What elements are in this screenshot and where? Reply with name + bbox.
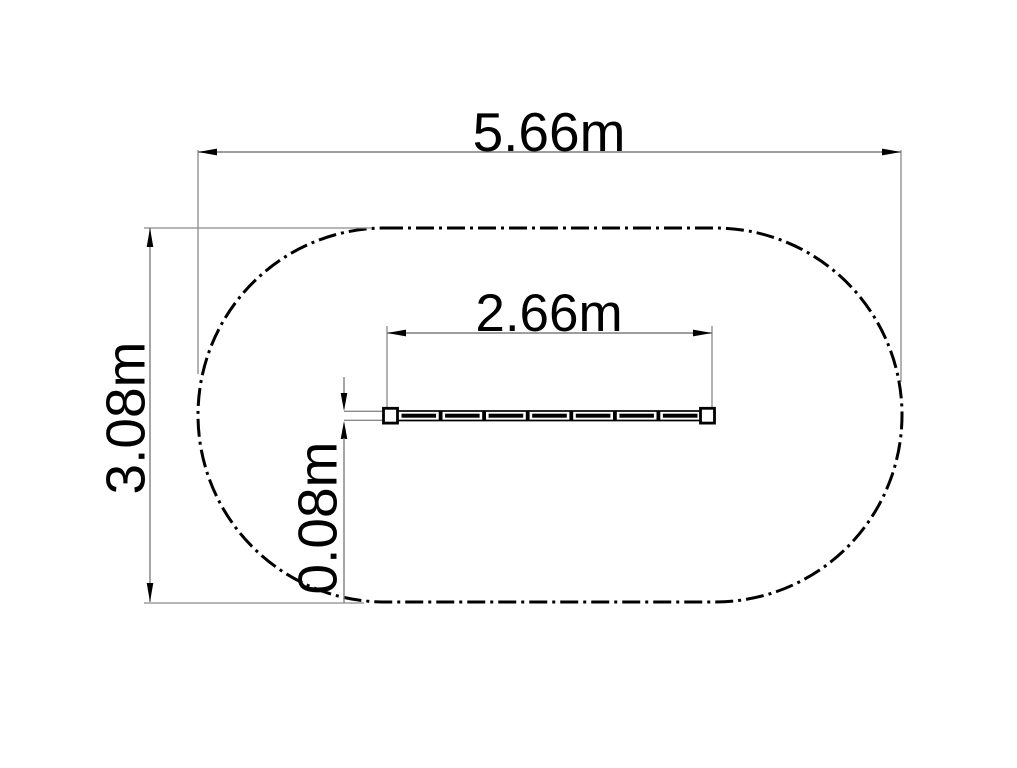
arrowhead-up [147,228,154,247]
arrowhead-down [341,393,348,411]
bar-endcap-right [701,408,715,423]
bar-slat [663,414,698,418]
technical-drawing-canvas: 5.66m 2.66m 3.08m 0.08m [0,0,1017,768]
bar-tick [439,411,443,420]
bar-slat [619,414,654,418]
dim-height-label: 3.08m [99,342,154,495]
arrowhead-right [882,149,901,156]
bar-tick [657,411,661,420]
bar-tick [526,411,530,420]
bar-tick [613,411,617,420]
arrowhead-down [147,583,154,602]
bar-endcap-left [384,408,398,423]
dim-overall-width [198,149,901,382]
bar-slat [402,414,437,418]
arrowhead-left [198,149,217,156]
bar-tick [482,411,486,420]
arrowhead-up [341,421,348,439]
arrowhead-right [693,330,712,337]
bar-slat [532,414,567,418]
dim-bar-length-label: 2.66m [475,287,622,340]
bar-slat [489,414,524,418]
bar [384,408,715,423]
arrowhead-left [387,330,406,337]
bar-tick [569,411,573,420]
dim-width-label: 5.66m [473,105,626,160]
bar-slat [445,414,480,418]
bar-slat [576,414,611,418]
dim-thickness-label: 0.08m [291,442,346,595]
